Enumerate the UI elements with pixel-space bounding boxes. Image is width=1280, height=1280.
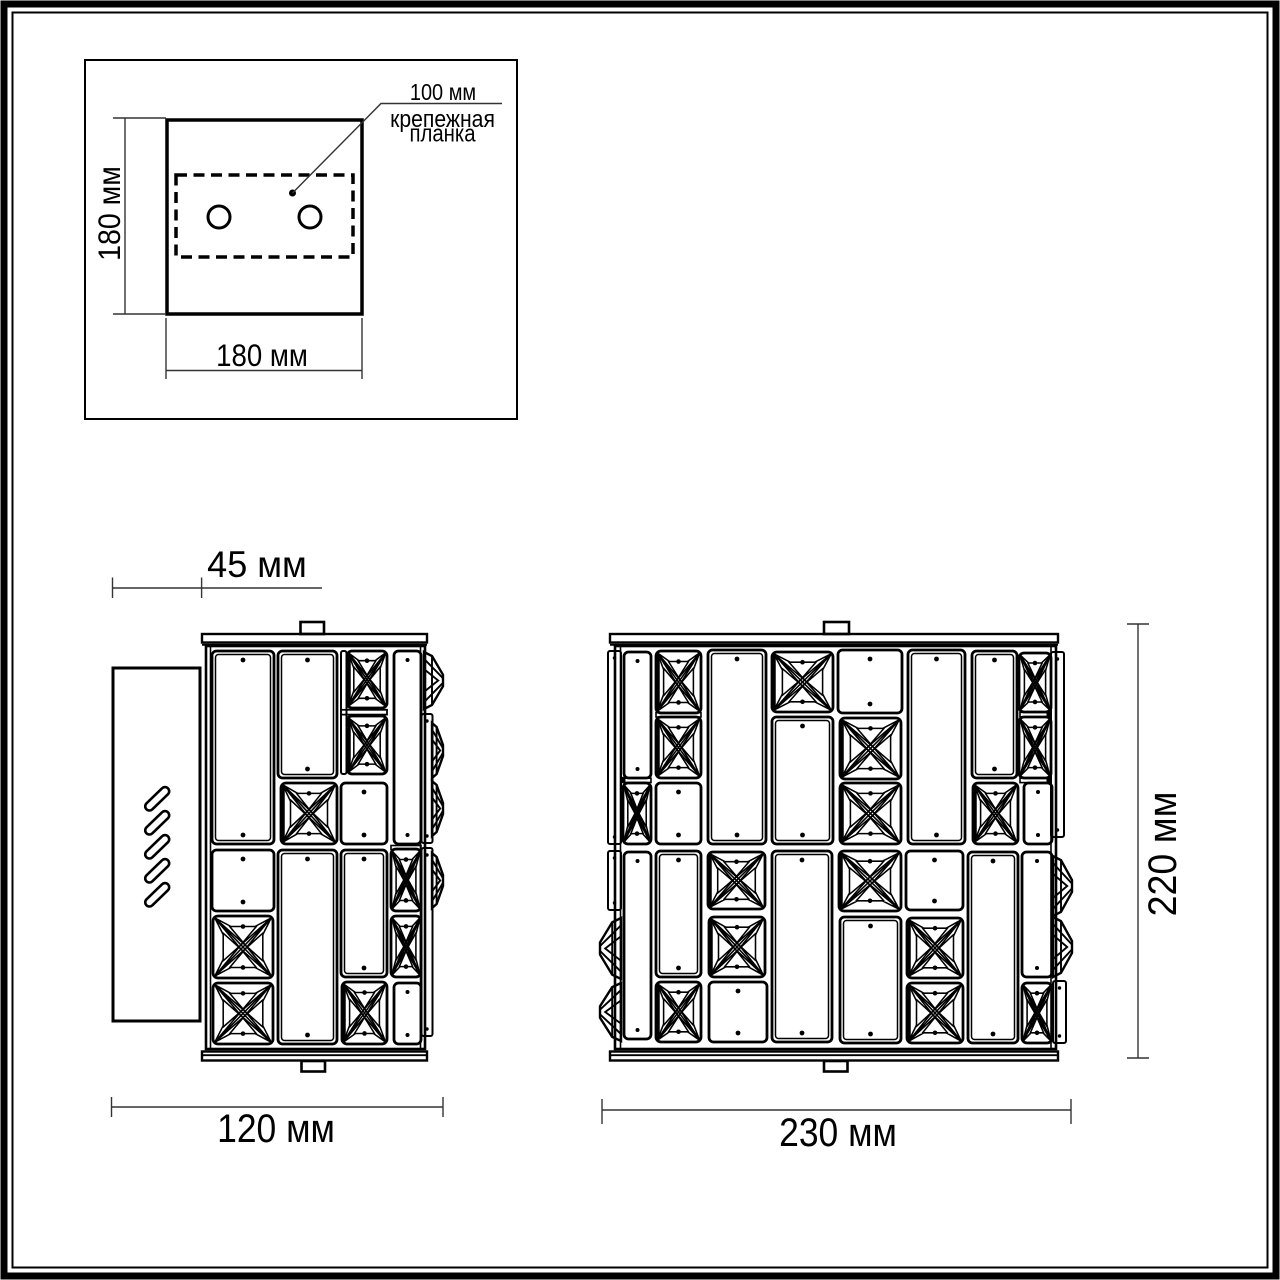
- svg-text:220 мм: 220 мм: [1141, 792, 1185, 917]
- svg-text:180 мм: 180 мм: [216, 338, 308, 373]
- svg-text:планка: планка: [409, 120, 476, 147]
- svg-text:180 мм: 180 мм: [93, 166, 128, 261]
- svg-text:120 мм: 120 мм: [217, 1107, 335, 1151]
- svg-text:100 мм: 100 мм: [410, 80, 476, 106]
- svg-text:45 мм: 45 мм: [207, 543, 307, 585]
- svg-text:230 мм: 230 мм: [779, 1111, 897, 1155]
